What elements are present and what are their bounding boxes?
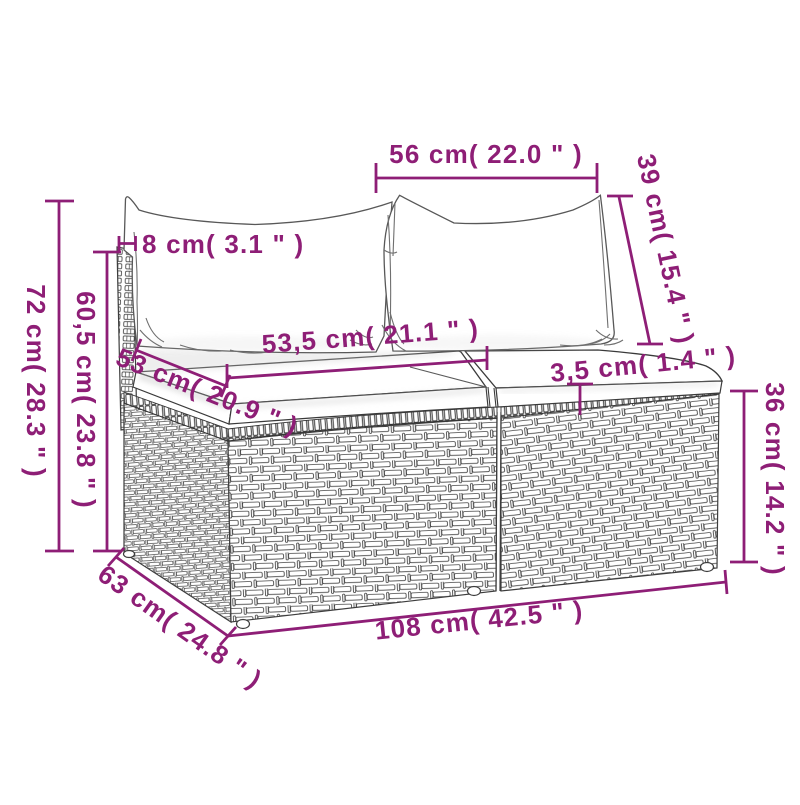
svg-text:72 cm( 28.3 " ): 72 cm( 28.3 " ) [21,284,51,478]
svg-text:60,5 cm( 23.8 " ): 60,5 cm( 23.8 " ) [71,291,101,509]
svg-text:56 cm( 22.0 " ): 56 cm( 22.0 " ) [389,139,583,169]
svg-text:8 cm( 3.1 " ): 8 cm( 3.1 " ) [142,229,304,259]
svg-text:36 cm( 14.2 " ): 36 cm( 14.2 " ) [760,382,790,576]
